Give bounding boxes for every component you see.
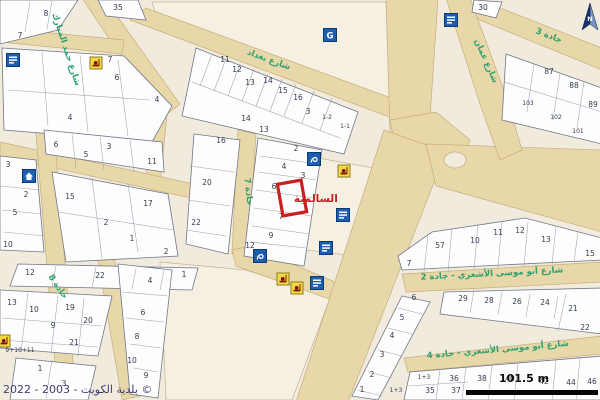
parcel-number[interactable]: 9 (51, 321, 56, 330)
parcel-number[interactable]: 13 (541, 235, 551, 244)
parcel-number[interactable]: 1+3 (418, 374, 431, 381)
parcel-number[interactable]: 22 (95, 271, 105, 280)
parcel-number[interactable]: 19 (65, 303, 75, 312)
parcel-number[interactable]: 8 (44, 9, 49, 18)
parcel-number[interactable]: 6 (54, 140, 59, 149)
parcel-number[interactable]: 6 (412, 293, 417, 302)
parcel-number[interactable]: 17 (143, 199, 153, 208)
parcel-number[interactable]: 11 (220, 55, 230, 64)
poi-icon-fountain[interactable] (308, 153, 321, 166)
parcel-number[interactable]: 15 (65, 192, 75, 201)
parcel-number[interactable]: 2 (24, 190, 29, 199)
parcel-number[interactable]: 2 (164, 247, 169, 256)
parcel-number[interactable]: 44 (566, 378, 576, 387)
parcel-number[interactable]: 87 (544, 67, 554, 76)
parcel-number[interactable]: 6 (141, 308, 146, 317)
parcel-number[interactable]: 2 (370, 370, 375, 379)
svg-text:G: G (327, 32, 334, 42)
parcel-number[interactable]: 6 (115, 73, 120, 82)
parcel-number[interactable]: 1 (130, 234, 135, 243)
parcel-number[interactable]: 16 (293, 93, 303, 102)
parcel-number[interactable]: 103 (522, 100, 534, 107)
parcel-number[interactable]: 10 (470, 236, 480, 245)
parcel-number[interactable]: 37 (451, 386, 461, 395)
parcel-number[interactable]: 7 (18, 31, 23, 40)
parcel-number[interactable]: 22 (580, 323, 590, 332)
parcel-number[interactable]: 22 (191, 218, 201, 227)
parcel-number[interactable]: 13 (259, 125, 269, 134)
poi-icon-sign[interactable] (337, 209, 350, 222)
parcel-number[interactable]: 4 (68, 113, 73, 122)
parcel-number[interactable]: 12 (232, 65, 242, 74)
parcel-number[interactable]: 24 (540, 298, 550, 307)
city-block (186, 134, 240, 254)
parcel-number[interactable]: 16 (216, 136, 226, 145)
parcel-number[interactable]: 7 (407, 259, 412, 268)
parcel-number[interactable]: 101 (572, 128, 584, 135)
poi-icon-mosque[interactable] (277, 273, 289, 285)
north-label: N (587, 15, 592, 23)
parcel-number[interactable]: 5 (84, 150, 89, 159)
parcel-number[interactable]: 46 (587, 377, 597, 386)
parcel-number[interactable]: 4 (155, 95, 160, 104)
parcel-number[interactable]: 15 (278, 86, 288, 95)
poi-icon-sign[interactable] (320, 242, 333, 255)
parcel-number[interactable]: 89 (588, 100, 598, 109)
parcel-number[interactable]: 57 (435, 241, 445, 250)
poi-icon-sign[interactable] (445, 14, 458, 27)
parcel-number[interactable]: 21 (69, 338, 79, 347)
parcel-number[interactable]: 2 (104, 218, 109, 227)
parcel-number[interactable]: 9+10+11 (5, 347, 34, 354)
map-canvas[interactable]: 8735764411121314151631-21-11413162022243… (0, 0, 600, 400)
parcel-number[interactable]: 9 (269, 231, 274, 240)
traffic-island (444, 152, 466, 168)
parcel-number[interactable]: 12 (245, 241, 255, 250)
parcel-number[interactable]: 38 (477, 374, 487, 383)
parcel-number[interactable]: 29 (458, 294, 468, 303)
parcel-number[interactable]: 10 (3, 240, 13, 249)
parcel-number[interactable]: 3 (107, 142, 112, 151)
parcel-number[interactable]: 12 (515, 226, 525, 235)
parcel-number[interactable]: 8 (135, 332, 140, 341)
parcel-number[interactable]: 5 (400, 313, 405, 322)
poi-icon-public-building[interactable]: G (324, 29, 337, 42)
poi-icon-fountain[interactable] (254, 250, 267, 263)
parcel-number[interactable]: 1-2 (322, 114, 332, 121)
poi-icon-house[interactable] (23, 170, 36, 183)
parcel-number[interactable]: 11 (147, 157, 157, 166)
parcel-number[interactable]: 10 (127, 356, 137, 365)
parcel-number[interactable]: 4 (148, 276, 153, 285)
parcel-number[interactable]: 5 (13, 208, 18, 217)
parcel-number[interactable]: 28 (484, 296, 494, 305)
parcel-number[interactable]: 13 (7, 298, 17, 307)
parcel-number[interactable]: 4 (282, 162, 287, 171)
poi-icon-sign[interactable] (7, 54, 20, 67)
parcel-number[interactable]: 26 (512, 297, 522, 306)
parcel-number[interactable]: 1+3 (390, 387, 403, 394)
parcel-number[interactable]: 14 (241, 114, 251, 123)
city-block (398, 218, 600, 270)
parcel-number[interactable]: 4 (390, 331, 395, 340)
parcel-number[interactable]: 3 (380, 350, 385, 359)
parcel-number[interactable]: 15 (585, 249, 595, 258)
parcel-number[interactable]: 88 (569, 81, 579, 90)
parcel-number[interactable]: 13 (245, 78, 255, 87)
selected-parcel-label: السالمية (294, 193, 338, 205)
parcel-number[interactable]: 14 (263, 76, 273, 85)
parcel-number[interactable]: 21 (568, 304, 578, 313)
parcel-number[interactable]: 1 (182, 270, 187, 279)
scale-bar (466, 390, 598, 395)
parcel-number[interactable]: 36 (449, 374, 459, 383)
poi-icon-mosque[interactable] (90, 57, 102, 69)
parcel-number[interactable]: 7 (108, 55, 113, 64)
parcel-number[interactable]: 1-1 (340, 123, 350, 130)
parcel-number[interactable]: 2 (294, 144, 299, 153)
parcel-number[interactable]: 1 (360, 385, 365, 394)
parcel-number[interactable]: 30 (478, 3, 488, 12)
map-viewport[interactable]: 8735764411121314151631-21-11413162022243… (0, 0, 600, 400)
scale-label: 101.5 m (499, 372, 549, 385)
parcel-number[interactable]: 3 (306, 107, 311, 116)
parcel-number[interactable]: 10 (29, 305, 39, 314)
parcel-number[interactable]: 35 (425, 386, 435, 395)
parcel-number[interactable]: 35 (113, 3, 123, 12)
poi-icon-mosque[interactable] (291, 282, 303, 294)
poi-icon-sign[interactable] (311, 277, 324, 290)
parcel-number[interactable]: 3 (6, 160, 11, 169)
parcel-number[interactable]: 20 (83, 316, 93, 325)
parcel-number[interactable]: 9 (144, 371, 149, 380)
parcel-number[interactable]: 20 (202, 178, 212, 187)
parcel-number[interactable]: 1 (38, 364, 43, 373)
poi-icon-mosque[interactable] (0, 335, 10, 347)
parcel-number[interactable]: 11 (493, 228, 503, 237)
parcel-number[interactable]: 12 (25, 268, 35, 277)
parcel-number[interactable]: 102 (550, 114, 562, 121)
north-arrow: N (582, 3, 598, 30)
poi-icon-mosque[interactable] (338, 165, 350, 177)
copyright-attribution: 2022 - 2003 - بلدية الكويت © (3, 383, 152, 396)
